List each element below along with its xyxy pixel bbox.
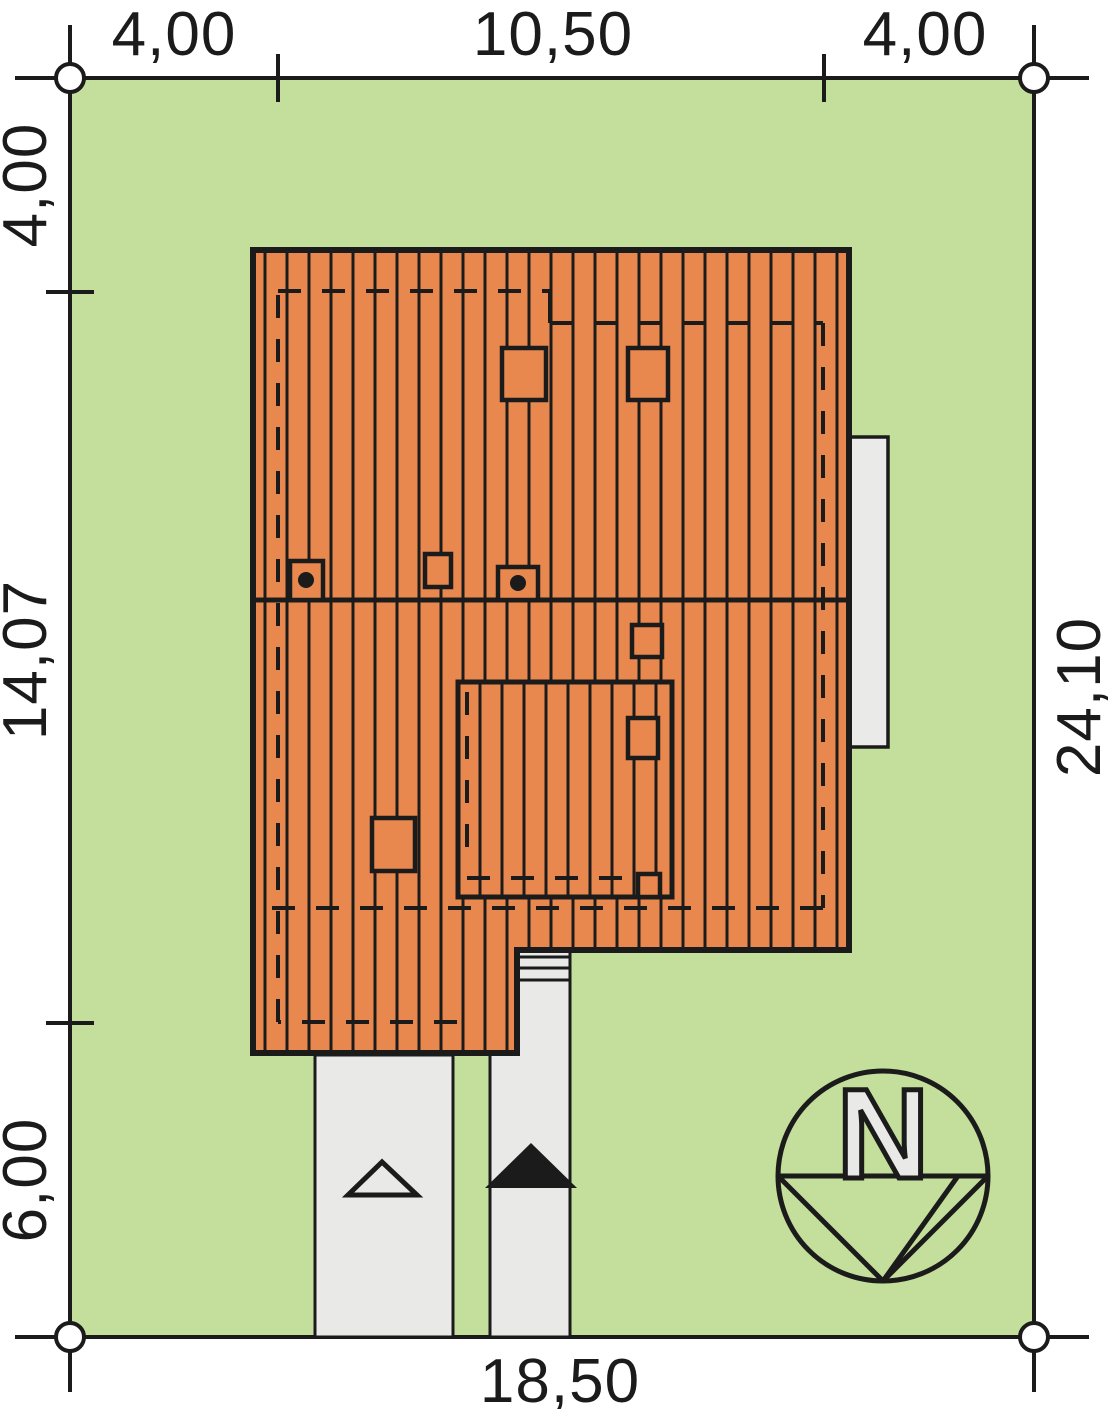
dim-top-right: 4,00: [863, 0, 988, 69]
dim-left-middle: 14,07: [0, 580, 60, 740]
chimney: [372, 818, 415, 871]
chimney: [502, 348, 546, 400]
vent-box: [638, 874, 660, 897]
dim-top-left: 4,00: [112, 0, 237, 69]
house-roof: [253, 250, 849, 1053]
vent-dot-icon: [510, 575, 526, 591]
roof-outline: [253, 250, 849, 1053]
vent-box: [632, 625, 662, 657]
dim-right: 24,10: [1045, 617, 1111, 777]
site-plan-canvas: N 4,00 10,50 4,00 4,00 14,07 6,00 24,10 …: [0, 0, 1111, 1409]
corner-marker-icon: [56, 1323, 84, 1351]
dim-left-upper: 4,00: [0, 123, 60, 248]
north-label: N: [837, 1063, 929, 1206]
side-terrace: [850, 437, 888, 747]
vent-dot-icon: [298, 572, 314, 588]
chimney: [628, 348, 668, 400]
corner-marker-icon: [1020, 1323, 1048, 1351]
corner-marker-icon: [56, 64, 84, 92]
annex-roof: [458, 682, 672, 897]
vent-box: [425, 554, 451, 587]
dim-bottom: 18,50: [480, 1347, 640, 1409]
chimney: [628, 718, 658, 758]
dim-top-middle: 10,50: [473, 0, 633, 69]
dim-left-lower: 6,00: [0, 1118, 60, 1243]
corner-marker-icon: [1020, 64, 1048, 92]
